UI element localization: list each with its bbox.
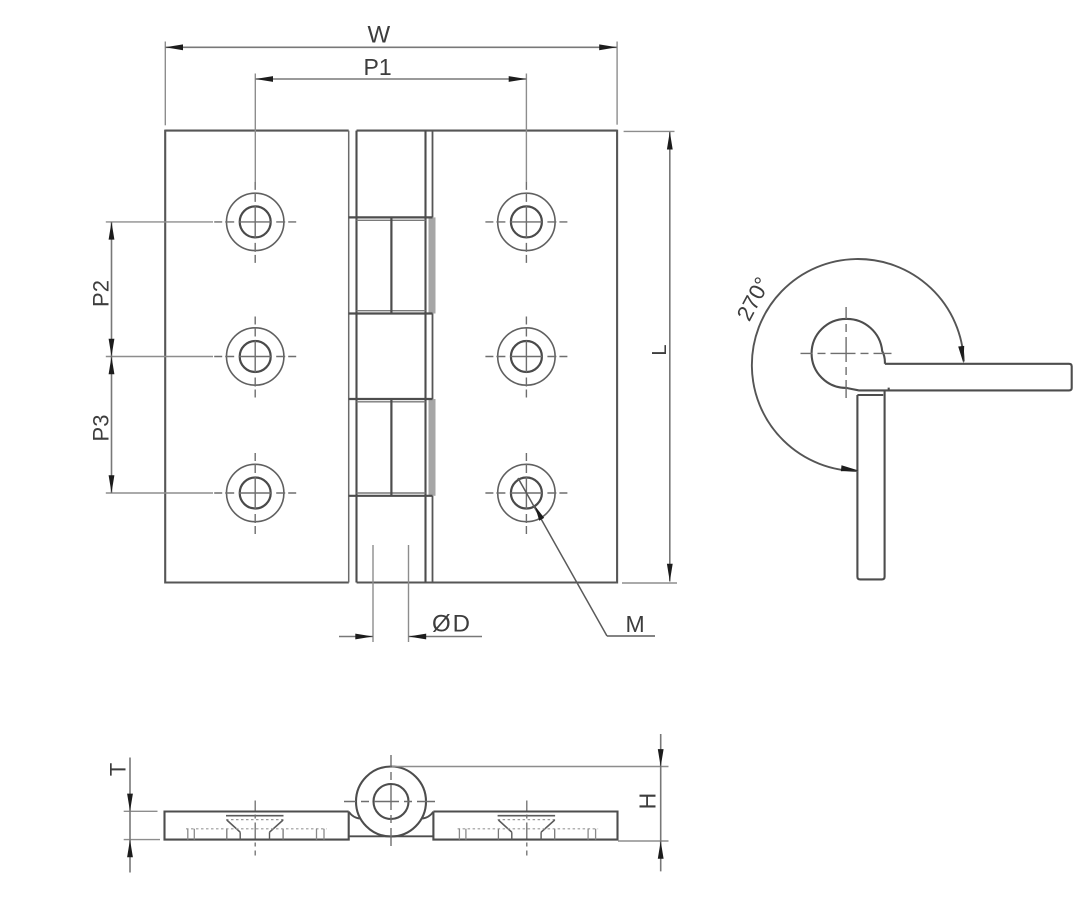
svg-text:T: T — [106, 763, 131, 776]
svg-text:P1: P1 — [364, 54, 392, 80]
svg-text:H: H — [634, 793, 660, 810]
svg-text:ØD: ØD — [432, 611, 472, 638]
svg-text:W: W — [368, 22, 391, 49]
svg-text:P2: P2 — [89, 280, 114, 307]
svg-text:P3: P3 — [89, 415, 114, 442]
svg-text:M: M — [626, 611, 645, 637]
svg-text:L: L — [649, 344, 671, 355]
svg-text:270°: 270° — [732, 273, 775, 325]
